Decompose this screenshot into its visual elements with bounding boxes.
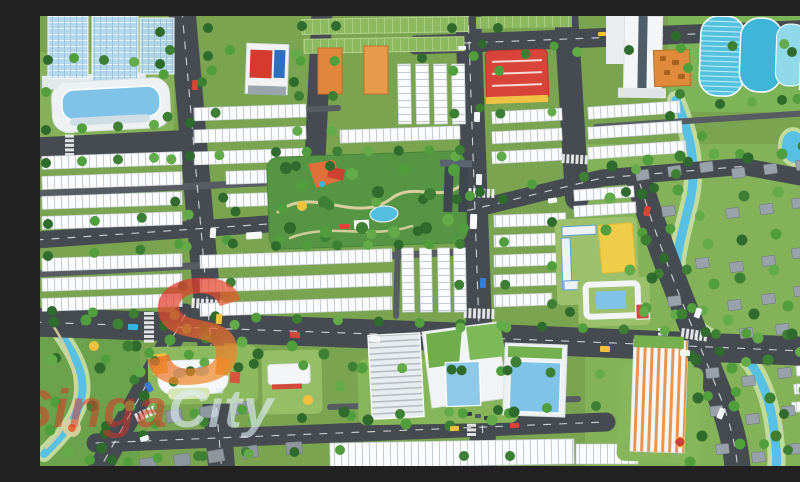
masterplan-aerial-render: S SingaCity [40, 16, 800, 466]
billboard-screen-blue [274, 50, 286, 78]
glass-tower-complex [775, 23, 800, 86]
highrise-tower [48, 16, 88, 78]
skyscraper-podium [618, 88, 666, 99]
highrise-tower [92, 16, 138, 86]
office-slab [368, 333, 424, 420]
housing-column [397, 64, 411, 124]
billboard-base [248, 85, 286, 95]
park-west-feature [89, 341, 99, 351]
playground-dot-blue [319, 181, 325, 187]
kindergarten-block-orange [215, 357, 230, 375]
school-building [562, 225, 596, 236]
housing-column [419, 248, 432, 312]
factory-green-roof [476, 16, 572, 29]
market-hall-roof [485, 49, 549, 101]
midrise-orange-stripes [630, 339, 688, 453]
midrise-plaza [675, 437, 685, 447]
road-h-west-upper [40, 140, 196, 148]
annex-red-awning [272, 383, 302, 389]
housing-column [437, 248, 450, 312]
housing-column [401, 248, 414, 312]
tower-orange [318, 48, 342, 94]
billboard-screen-red [250, 50, 273, 79]
playground-dot-yellow [297, 201, 307, 211]
tower-orange [364, 46, 388, 94]
school2-courtyard [596, 290, 627, 309]
factory-green-roof [302, 17, 468, 35]
kindergarten-court [168, 387, 210, 399]
kindergarten-block-red [230, 372, 241, 384]
housing-row [330, 439, 574, 466]
skyscraper-back [606, 16, 626, 64]
scene-svg [40, 16, 800, 466]
housing-row [494, 293, 552, 307]
housing-column [433, 64, 447, 124]
glass-tower-complex [699, 16, 746, 97]
park-west-playground [68, 424, 76, 432]
midrise-green-roof [634, 335, 684, 349]
skyscraper-core-stripe [637, 16, 647, 92]
lane-center-vertical [396, 246, 398, 316]
housing-column [415, 64, 429, 124]
annex-dot-yellow [303, 395, 313, 405]
